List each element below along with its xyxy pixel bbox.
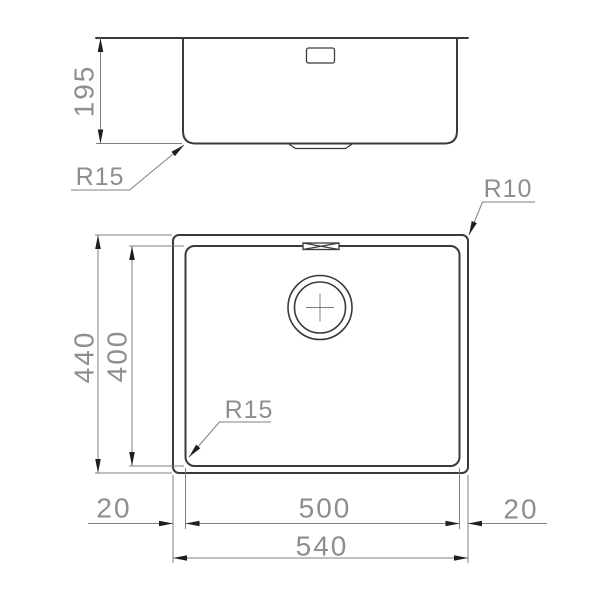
outer-radius-leader xyxy=(469,202,483,235)
side-view-bowl-outline xyxy=(183,38,457,144)
plan-outer-rect xyxy=(173,235,468,473)
left-offset-label: 20 xyxy=(96,493,131,524)
depth-dimension-label: 195 xyxy=(69,65,100,118)
side-view xyxy=(96,38,468,149)
overall-height-label: 440 xyxy=(69,331,100,384)
overall-width-label: 540 xyxy=(296,531,349,562)
right-offset-label: 20 xyxy=(503,494,538,525)
bowl-height-label: 400 xyxy=(102,330,133,383)
plan-overflow-mark xyxy=(303,243,339,250)
inner-radius-leader xyxy=(189,422,220,457)
bowl-height-extension-lines xyxy=(129,246,184,466)
sink-drawing-svg: 195 R15 R10 440 400 R15 20 500 20 540 xyxy=(0,0,600,600)
bowl-width-label: 500 xyxy=(299,493,352,524)
inner-radius-label: R15 xyxy=(225,396,274,424)
dimension-lines xyxy=(71,38,547,563)
technical-drawing-canvas: 195 R15 R10 440 400 R15 20 500 20 540 xyxy=(0,0,600,600)
plan-inner-rect xyxy=(186,246,460,466)
side-radius-label: R15 xyxy=(76,163,125,191)
plan-view xyxy=(173,235,468,473)
side-view-overflow-hole xyxy=(307,48,335,63)
outer-radius-label: R10 xyxy=(484,175,533,203)
drain-crosshair xyxy=(306,294,334,322)
side-radius-leader xyxy=(130,145,185,190)
